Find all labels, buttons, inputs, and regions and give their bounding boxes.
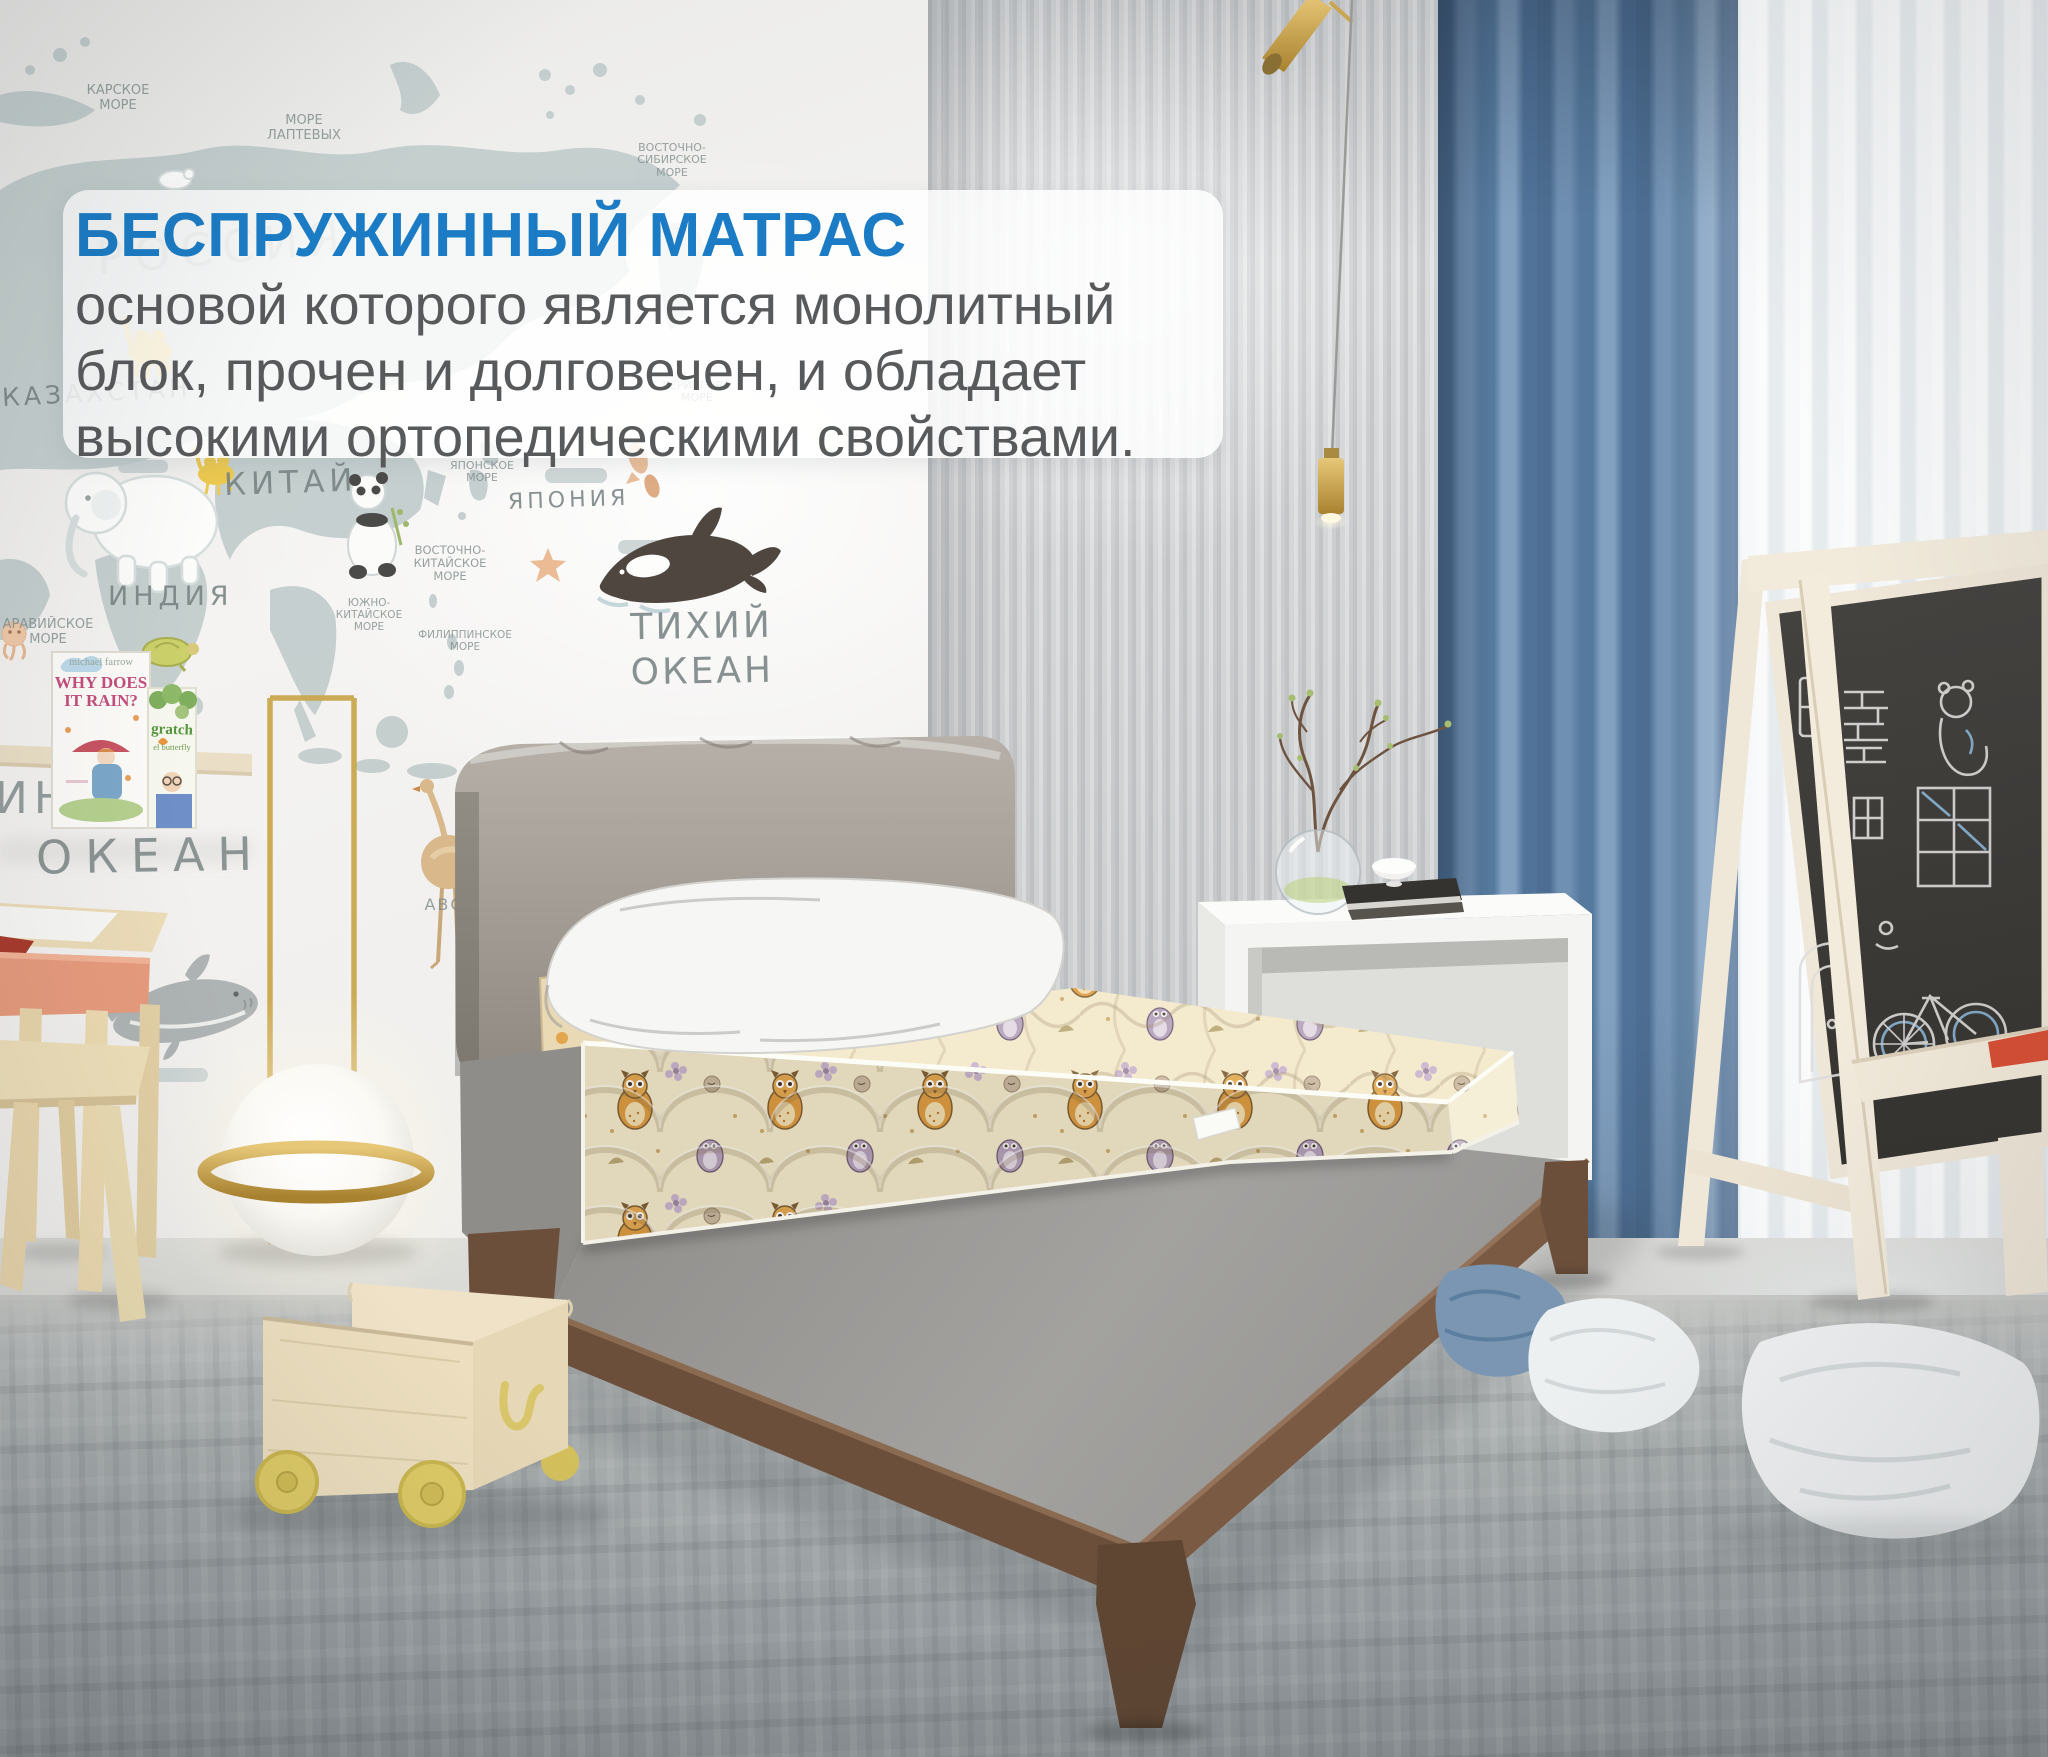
product-photo-children-bedroom: КАРСКОЕ МОРЕ МОРЕ ЛАПТЕВЫХ ВОСТОЧНО- СИБ…: [0, 0, 2048, 1757]
overlay-body-line-3: высокими ортопедическими свойствами.: [75, 404, 1215, 470]
overlay-title: БЕСПРУЖИННЫЙ МАТРАС: [75, 200, 1215, 271]
book2-subtitle-text: el butterfly: [146, 742, 198, 752]
pendant-light-hanging: [1313, 0, 1352, 530]
easel-right-leg: [1998, 1132, 2048, 1296]
cart-wheel-left: [257, 1452, 317, 1512]
stool: [0, 1040, 150, 1322]
book1-title-text: WHY DOES IT RAIN?: [52, 674, 150, 710]
bookshelf-shadow: [0, 840, 250, 862]
curtain-fabric-pool: [1435, 1264, 2048, 1562]
bed-leg-front: [1096, 1540, 1196, 1728]
book1-author-text: michael farrow: [54, 657, 148, 668]
book2-title-text: gratch: [148, 721, 197, 740]
sphere-lamp: [148, 698, 488, 1330]
easel-rear-leg: [1678, 556, 1766, 1246]
toy-cart: [225, 1283, 615, 1542]
lamp-globe: [222, 1064, 414, 1256]
book-gratch: [148, 684, 197, 828]
pillow: [546, 878, 1064, 1053]
cart-wheel-right: [400, 1462, 464, 1526]
overlay-body: основой которого является монолитный бло…: [75, 272, 1215, 470]
overlay-body-line-1: основой которого является монолитный: [75, 272, 1215, 338]
pendant-light-angled: [1258, 0, 1352, 78]
overlay-body-line-2: блок, прочен и долговечен, и обладает: [75, 338, 1215, 404]
